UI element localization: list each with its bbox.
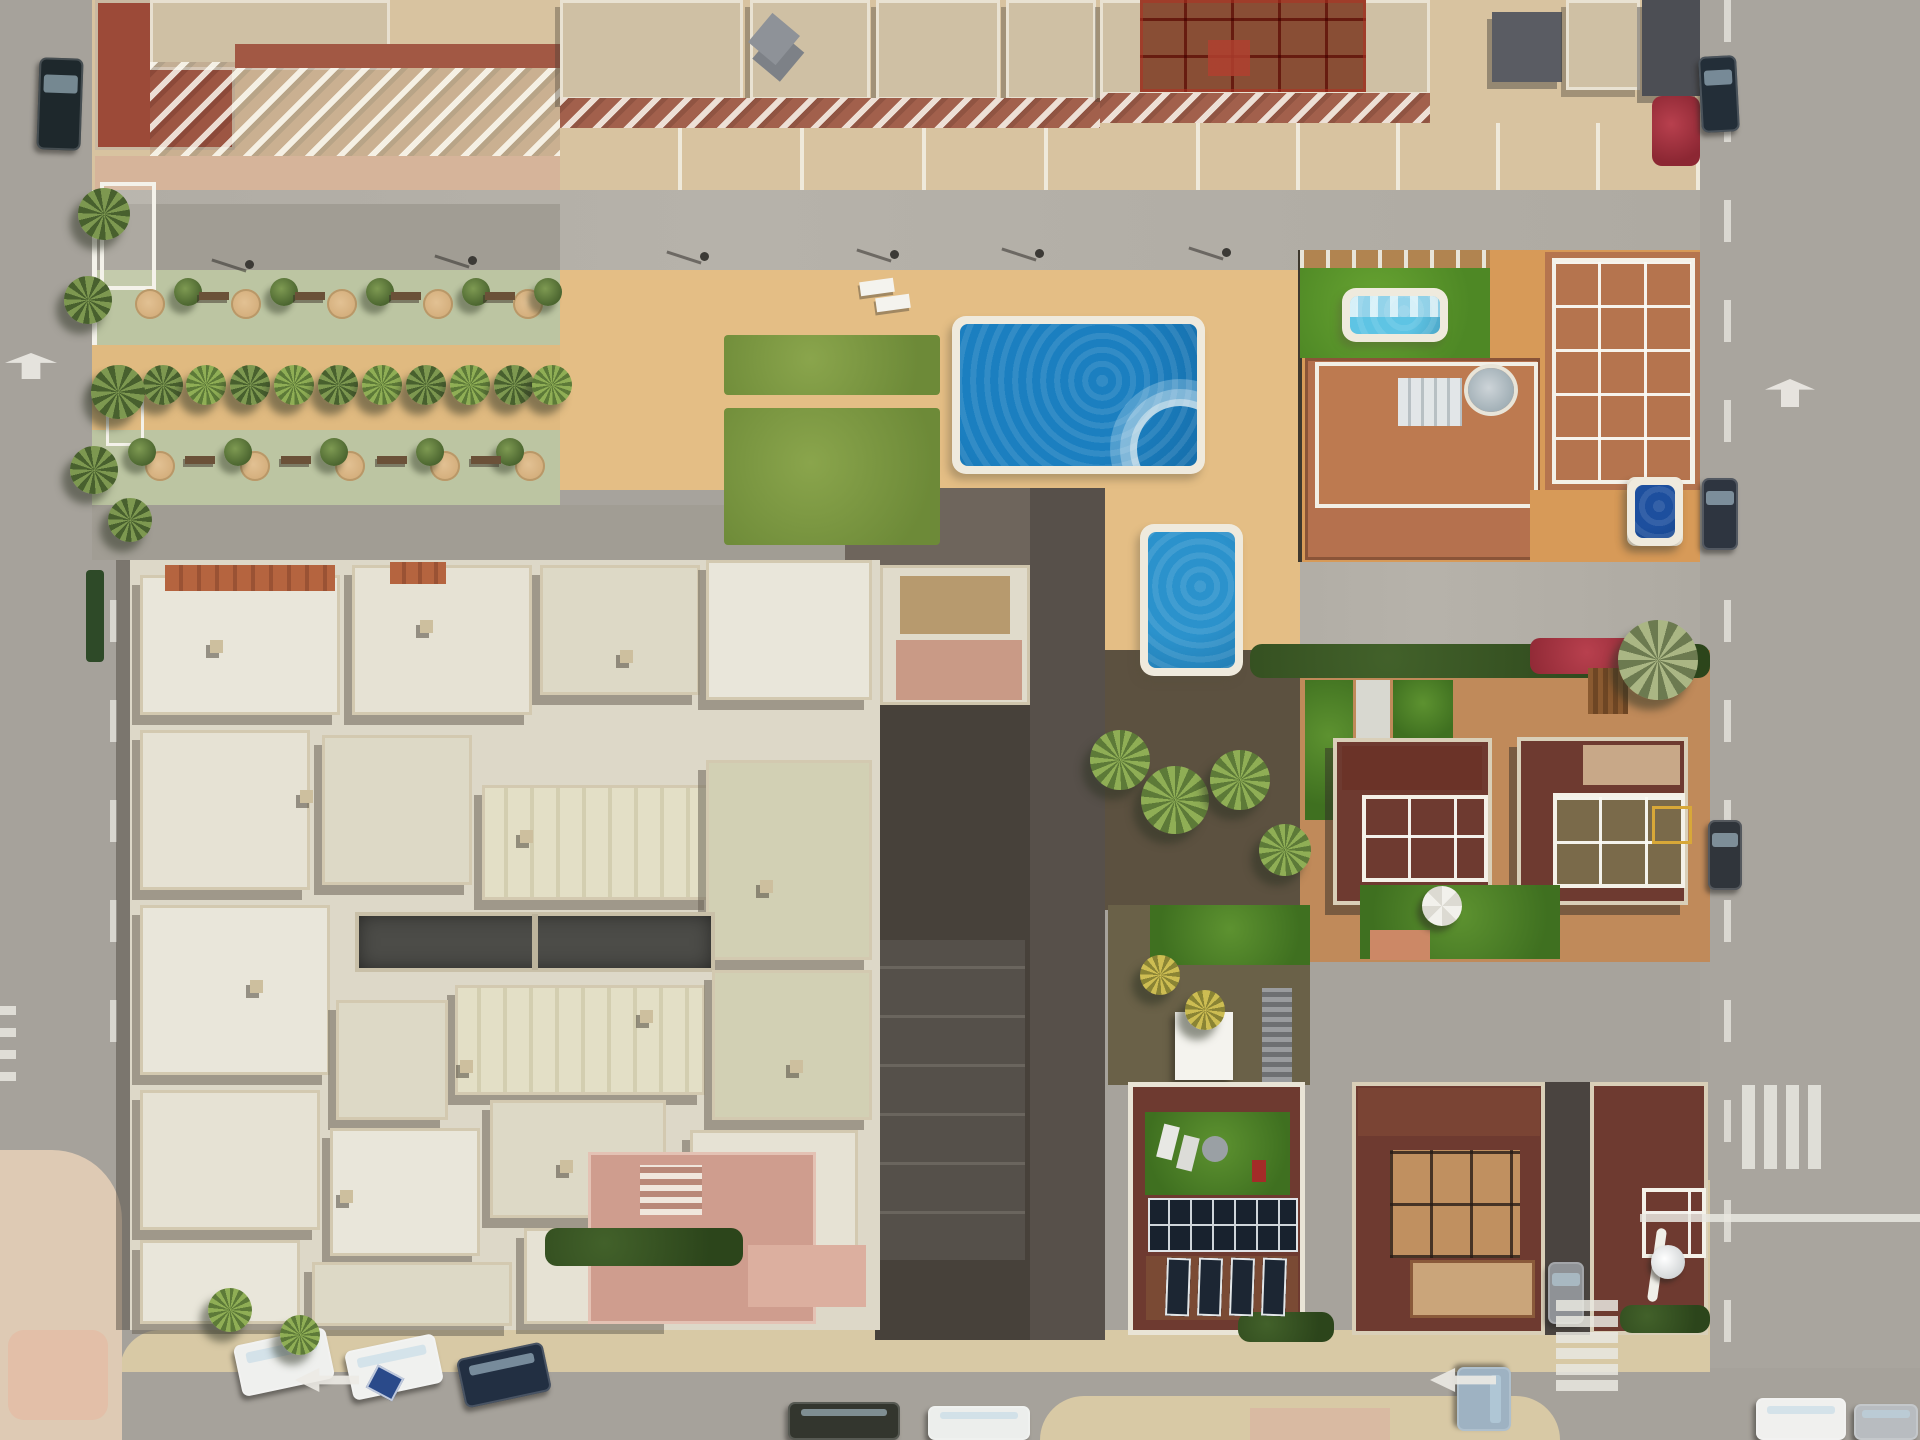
park-bench — [377, 456, 407, 464]
car-bottom-white — [928, 1406, 1030, 1440]
olive-tree — [320, 438, 348, 466]
park-bench — [485, 292, 515, 300]
roadside-palm — [108, 498, 152, 542]
street-lamp — [700, 252, 709, 261]
zebra-stripe — [1556, 1364, 1618, 1375]
roof-chimney — [460, 1060, 473, 1073]
tree-planter — [135, 289, 165, 319]
car-right-road-low-windshield — [1712, 833, 1738, 847]
car-bottom-right-silver — [1854, 1404, 1918, 1440]
park-bench — [199, 292, 229, 300]
give-way-bar — [1742, 1085, 1755, 1169]
villa-palm — [1210, 750, 1270, 810]
street-lamp — [1035, 249, 1044, 258]
car-parked-blue — [456, 1341, 552, 1408]
roof-chimney — [300, 790, 313, 803]
left-crossing-bar — [0, 1072, 16, 1081]
arrow-right-road-up — [1765, 379, 1815, 407]
zebra-stripe — [1556, 1348, 1618, 1359]
silver-palm — [1618, 620, 1698, 700]
car-driveway-silver-windshield — [1552, 1273, 1579, 1285]
car-dark-top-left-windshield — [44, 74, 78, 94]
left-crossing-bar — [0, 1050, 16, 1059]
roof-chimney — [640, 1010, 653, 1023]
olive-tree — [416, 438, 444, 466]
zebra-stripe — [1556, 1332, 1618, 1343]
yellow-palm — [1140, 955, 1180, 995]
car-right-road-top — [1698, 55, 1740, 133]
generated-objects — [0, 0, 1920, 1440]
arrow-left-road-up — [5, 353, 57, 379]
patio-umbrella — [1422, 886, 1462, 926]
car-bottom-right-silver-windshield — [1862, 1410, 1911, 1417]
car-right-road-low — [1708, 820, 1742, 890]
villa-covered-pool — [1342, 288, 1448, 342]
villa-palm — [1259, 824, 1311, 876]
white-sunlounger — [859, 278, 895, 297]
villa-palm — [208, 1288, 252, 1332]
tree-planter — [327, 289, 357, 319]
give-way-bar — [1786, 1085, 1799, 1169]
solar-small-panel — [1165, 1258, 1191, 1317]
olive-tree — [174, 278, 202, 306]
roadside-palm — [70, 446, 118, 494]
car-right-road-top-windshield — [1703, 69, 1733, 86]
yellow-palm — [1185, 990, 1225, 1030]
aerial-photo-scene: Drone photo: apartment buildings with te… — [0, 0, 1920, 1440]
car-bottom-right-white — [1756, 1398, 1846, 1440]
zebra-stripe — [1556, 1316, 1618, 1327]
promenade-palm — [362, 365, 402, 405]
car-driveway-silver — [1548, 1262, 1584, 1324]
promenade-palm — [494, 365, 534, 405]
car-right-road-mid — [1702, 478, 1738, 550]
left-crossing-bar — [0, 1028, 16, 1037]
car-parked-white-2-windshield — [356, 1344, 426, 1368]
car-bottom-white-windshield — [940, 1412, 1018, 1419]
street-lamp — [468, 256, 477, 265]
car-bottom-olive-windshield — [801, 1409, 886, 1417]
roof-chimney — [790, 1060, 803, 1073]
pool-cover — [1350, 296, 1440, 317]
olive-tree — [224, 438, 252, 466]
villa-palm — [1141, 766, 1209, 834]
villa-palm — [1090, 730, 1150, 790]
roof-chimney — [420, 620, 433, 633]
give-way-bar — [1764, 1085, 1777, 1169]
park-bench — [185, 456, 215, 464]
car-dark-top-left — [36, 57, 83, 150]
promenade-palm — [406, 365, 446, 405]
car-bottom-right-white-windshield — [1767, 1406, 1835, 1414]
villa-dark-pool — [1627, 477, 1683, 546]
promenade-palm — [532, 365, 572, 405]
tree-planter — [423, 289, 453, 319]
give-way-bar — [1808, 1085, 1821, 1169]
pool-steps — [1137, 406, 1197, 466]
park-bench — [391, 292, 421, 300]
promenade-palm — [186, 365, 226, 405]
villa-palm — [280, 1315, 320, 1355]
street-lamp — [1222, 248, 1231, 257]
park-bench — [471, 456, 501, 464]
solar-small-panel — [1261, 1258, 1287, 1317]
tree-planter — [231, 289, 261, 319]
park-bench — [295, 292, 325, 300]
small-community-pool — [1140, 524, 1243, 676]
roof-chimney — [210, 640, 223, 653]
roadside-palm — [64, 276, 112, 324]
roof-chimney — [560, 1160, 573, 1173]
olive-tree — [128, 438, 156, 466]
stop-line — [1640, 1214, 1920, 1222]
villa-dark-pool-water — [1635, 485, 1675, 538]
olive-tree — [534, 278, 562, 306]
zebra-stripe — [1556, 1380, 1618, 1391]
solar-small-panel — [1229, 1258, 1255, 1317]
street-lamp — [890, 250, 899, 259]
car-bottom-olive — [788, 1402, 900, 1440]
car-parked-blue-windshield — [468, 1352, 536, 1376]
main-community-pool — [952, 316, 1205, 474]
left-crossing-bar — [0, 1006, 16, 1015]
roadside-palm — [78, 188, 130, 240]
roof-chimney — [520, 830, 533, 843]
deck-grass-patch — [724, 335, 940, 395]
roof-chimney — [620, 650, 633, 663]
olive-tree — [270, 278, 298, 306]
car-right-road-mid-windshield — [1706, 491, 1733, 505]
villa-covered-pool-water — [1350, 296, 1440, 334]
small-community-pool-water — [1148, 532, 1235, 668]
street-lamp — [245, 260, 254, 269]
roof-chimney — [250, 980, 263, 993]
park-bench — [281, 456, 311, 464]
roof-chimney — [340, 1190, 353, 1203]
olive-tree — [366, 278, 394, 306]
roadside-palm — [91, 365, 145, 419]
promenade-palm — [230, 365, 270, 405]
promenade-palm — [450, 365, 490, 405]
roof-chimney — [760, 880, 773, 893]
main-community-pool-water — [960, 324, 1197, 466]
deck-grass-patch — [724, 408, 940, 545]
promenade-palm — [274, 365, 314, 405]
zebra-stripe — [1556, 1300, 1618, 1311]
promenade-palm — [318, 365, 358, 405]
white-sunlounger — [875, 294, 911, 313]
solar-small-panel — [1197, 1258, 1223, 1317]
satellite-dish-icon — [1651, 1245, 1685, 1279]
promenade-palm — [143, 365, 183, 405]
